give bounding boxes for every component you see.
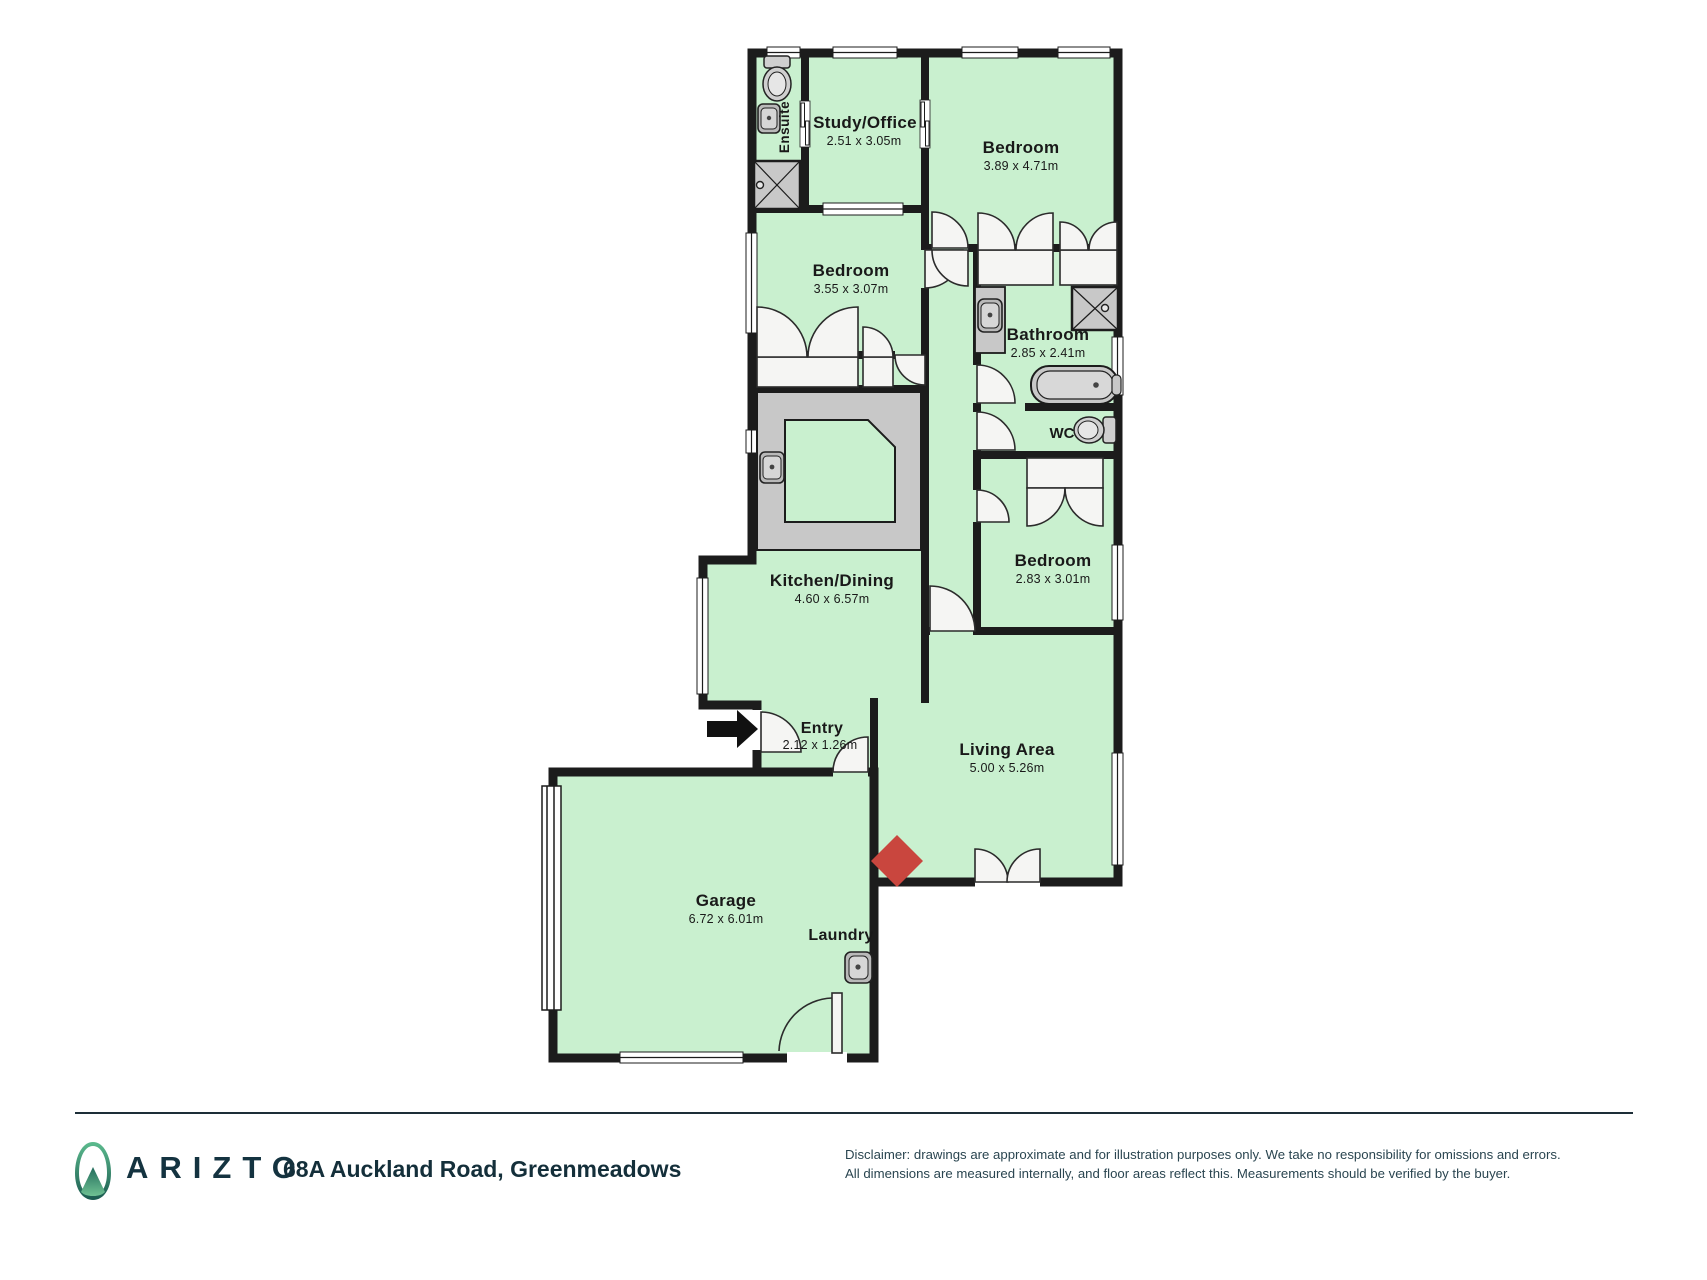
label-garage-dims: 6.72 x 6.01m bbox=[689, 912, 764, 926]
window-top-bedroom1-b bbox=[1058, 47, 1110, 58]
label-living: Living Area bbox=[959, 740, 1054, 759]
wardrobe-bedroom2-a bbox=[757, 357, 858, 387]
entry-arrow-icon bbox=[707, 710, 758, 748]
shower-icon-bathroom bbox=[1072, 287, 1118, 330]
label-entry: Entry bbox=[801, 720, 843, 737]
floorplan-page: Study/Office 2.51 x 3.05m Bedroom 3.89 x… bbox=[0, 0, 1707, 1280]
label-wc: WC bbox=[1050, 425, 1075, 442]
label-bedroom1-dims: 3.89 x 4.71m bbox=[984, 159, 1059, 173]
label-kitchen: Kitchen/Dining bbox=[770, 571, 894, 590]
label-bedroom3-dims: 2.83 x 3.01m bbox=[1016, 572, 1091, 586]
label-bedroom2-dims: 3.55 x 3.07m bbox=[814, 282, 889, 296]
pocket-door-ensuite bbox=[800, 101, 810, 147]
window-left-bedroom2 bbox=[746, 233, 757, 333]
brand-wordmark: ARIZTO bbox=[126, 1150, 307, 1186]
window-top-bedroom1-a bbox=[962, 47, 1018, 58]
disclaimer-line-1: Disclaimer: drawings are approximate and… bbox=[845, 1146, 1607, 1165]
bathtub-icon bbox=[1031, 366, 1121, 404]
arizto-logo-icon bbox=[72, 1140, 114, 1207]
window-top-study bbox=[833, 47, 897, 58]
garage-door bbox=[542, 786, 561, 1010]
label-bathroom: Bathroom bbox=[1007, 325, 1090, 344]
wardrobe-bedroom2-b bbox=[863, 357, 893, 387]
label-kitchen-dims: 4.60 x 6.57m bbox=[795, 592, 870, 606]
window-left-kitchen bbox=[746, 430, 757, 453]
kitchen-sink-icon bbox=[760, 452, 784, 483]
toilet-icon-wc bbox=[1074, 417, 1116, 443]
label-study: Study/Office bbox=[813, 113, 917, 132]
label-garage: Garage bbox=[696, 891, 756, 910]
label-study-dims: 2.51 x 3.05m bbox=[827, 134, 902, 148]
laundry-door-leaf bbox=[832, 993, 842, 1053]
label-entry-dims: 2.12 x 1.26m bbox=[783, 738, 858, 752]
label-bedroom2: Bedroom bbox=[813, 261, 890, 280]
disclaimer-line-2: All dimensions are measured internally, … bbox=[845, 1165, 1607, 1184]
window-garage-bottom bbox=[620, 1052, 743, 1063]
toilet-icon-ensuite bbox=[763, 56, 791, 101]
wardrobe-bedroom1-a bbox=[978, 250, 1053, 285]
label-bathroom-dims: 2.85 x 2.41m bbox=[1011, 346, 1086, 360]
window-kitchen-west bbox=[697, 578, 708, 694]
shower-icon-ensuite bbox=[754, 161, 800, 209]
cased-opening-study bbox=[823, 203, 903, 215]
property-address: 68A Auckland Road, Greenmeadows bbox=[283, 1156, 681, 1183]
label-living-dims: 5.00 x 5.26m bbox=[970, 761, 1045, 775]
window-right-bedroom3 bbox=[1112, 545, 1123, 620]
bathroom-vanity bbox=[975, 287, 1005, 353]
pocket-door-study bbox=[920, 100, 930, 148]
label-ensuite: Ensuite bbox=[777, 101, 792, 153]
label-bedroom1: Bedroom bbox=[983, 138, 1060, 157]
window-right-living bbox=[1112, 753, 1123, 865]
label-laundry: Laundry bbox=[808, 927, 873, 944]
footer-divider bbox=[75, 1112, 1633, 1114]
disclaimer-text: Disclaimer: drawings are approximate and… bbox=[845, 1146, 1607, 1183]
floorplan-svg: Study/Office 2.51 x 3.05m Bedroom 3.89 x… bbox=[0, 0, 1707, 1280]
wardrobe-bedroom1-b bbox=[1060, 250, 1117, 285]
label-bedroom3: Bedroom bbox=[1015, 551, 1092, 570]
laundry-tub-icon bbox=[845, 952, 872, 983]
wardrobe-bedroom3 bbox=[1027, 458, 1103, 488]
